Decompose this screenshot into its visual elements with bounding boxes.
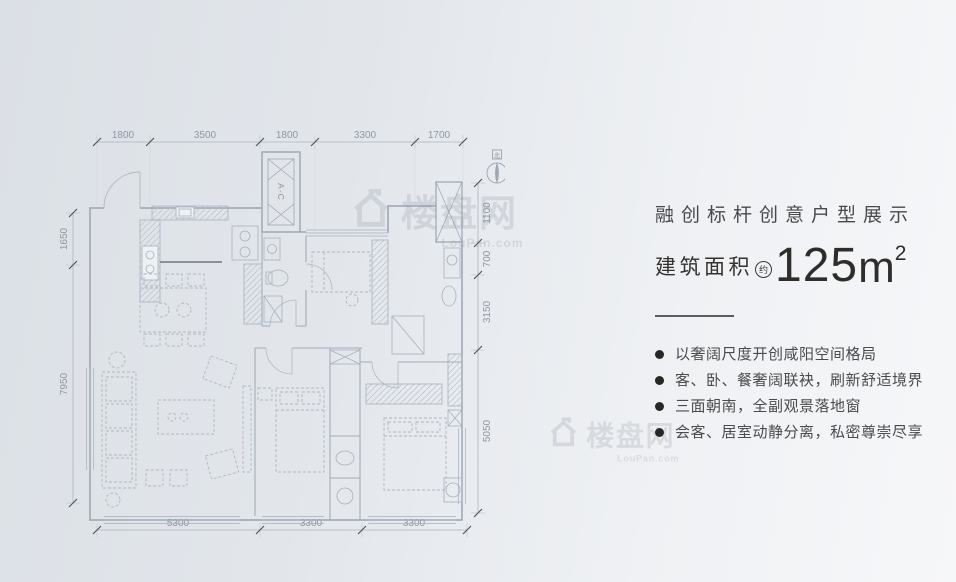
screenshot-root: 1800 3500 1800 3300 1700 5300 3300 3300 … [0, 0, 956, 582]
area-unit: m [858, 248, 895, 288]
dimension-lines: 1800 3500 1800 3300 1700 5300 3300 3300 … [59, 130, 493, 537]
feature-item: 客、卧、餐奢阔联袂，刷新舒适境界 [655, 373, 950, 388]
bedroom-2 [258, 388, 324, 472]
watermark-house-icon [546, 418, 581, 450]
dim-right-1: 700 [482, 250, 493, 267]
ac-shaft: A-C [262, 152, 300, 232]
page-title: 融创标杆创意户型展示 [655, 200, 950, 227]
dim-left-1: 7950 [59, 372, 70, 395]
bullet-dot-icon [655, 428, 664, 437]
watermark-subtext: LouPan.com [617, 453, 679, 464]
entry-door [104, 172, 140, 208]
bullet-dot-icon [655, 350, 664, 359]
feature-text: 三面朝南，全副观景落地窗 [675, 399, 861, 414]
dim-right-0: 1100 [482, 202, 493, 224]
ac-unit-label: A-C [276, 183, 286, 201]
dim-right-3: 5050 [482, 419, 493, 442]
feature-text: 客、卧、餐奢阔联袂，刷新舒适境界 [675, 373, 923, 388]
feature-item: 三面朝南，全副观景落地窗 [655, 399, 950, 414]
feature-text: 会客、居室动静分离，私密尊崇尽享 [675, 425, 923, 440]
ac-platform-right [436, 182, 462, 242]
bedroom-top [312, 240, 388, 324]
divider-line [655, 315, 734, 317]
feature-item: 会客、居室动静分离，私密尊崇尽享 [655, 425, 950, 440]
floorplan-drawing: 1800 3500 1800 3300 1700 5300 3300 3300 … [55, 120, 505, 550]
living-room [102, 352, 251, 507]
feature-list: 以奢阔尺度开创咸阳空间格局 客、卧、餐奢阔联袂，刷新舒适境界 三面朝南，全副观景… [655, 347, 950, 440]
bullet-dot-icon [655, 376, 664, 385]
bedroom-3 [366, 354, 462, 502]
dim-top-1: 3500 [194, 130, 217, 141]
bathroom-top-right [392, 248, 460, 354]
kitchen [140, 206, 228, 302]
feature-item: 以奢阔尺度开创咸阳空间格局 [655, 347, 950, 362]
bathroom-strip [330, 350, 360, 504]
info-panel: 融创标杆创意户型展示 建筑面积 约 125 m 2 以奢阔尺度开创咸阳空间格局 … [655, 200, 950, 451]
approx-badge: 约 [755, 261, 772, 278]
bullet-dot-icon [655, 402, 664, 411]
dim-top-4: 1700 [428, 130, 451, 141]
dim-left-0: 1650 [59, 227, 70, 250]
dim-top-2: 1800 [276, 130, 299, 141]
building-area: 建筑面积 约 125 m 2 [655, 244, 950, 288]
dim-top-3: 3300 [354, 130, 377, 141]
interior-walls [255, 232, 462, 520]
bathroom-middle [232, 226, 288, 324]
area-label: 建筑面积 [655, 251, 753, 288]
dim-top-0: 1800 [112, 130, 135, 141]
dim-right-2: 3150 [482, 300, 493, 323]
area-value: 125 [775, 244, 858, 288]
feature-text: 以奢阔尺度开创咸阳空间格局 [675, 347, 877, 362]
compass-north-label: 北 [494, 152, 501, 160]
area-exponent: 2 [895, 242, 907, 266]
compass-icon: 北 [487, 150, 505, 183]
